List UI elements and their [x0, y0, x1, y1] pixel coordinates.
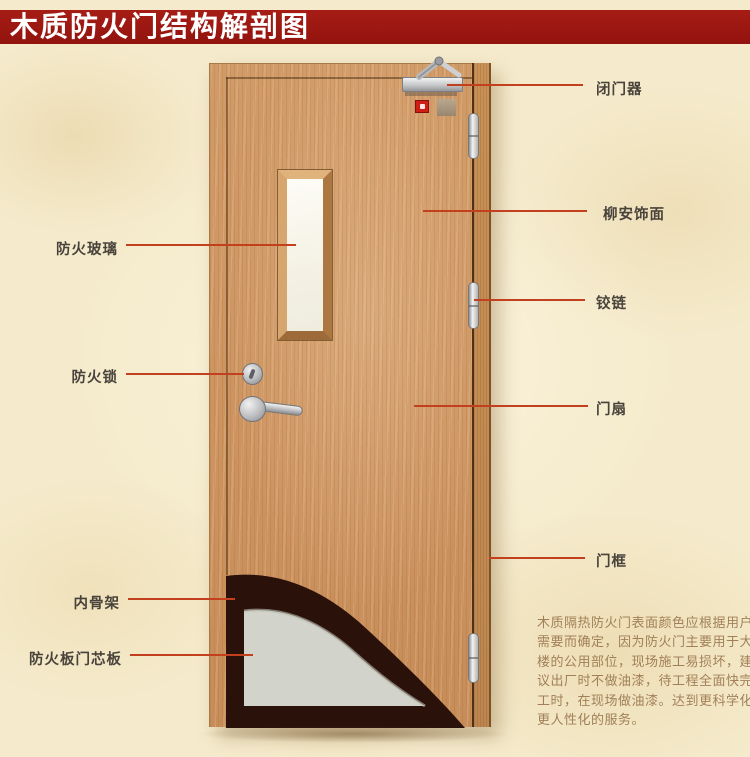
bottom-cutaway [209, 567, 471, 728]
door-closer-arm [409, 55, 469, 81]
leader-line-hinge [474, 299, 585, 301]
label-inner-frame: 内骨架 [74, 592, 121, 613]
leader-line-core-board [130, 654, 253, 656]
door-frame [474, 63, 491, 727]
fire-alarm-indicator [415, 100, 429, 113]
description-line: 木质隔热防火门表面颜色应根据用户 [537, 613, 742, 632]
label-door-leaf: 门扇 [596, 398, 627, 419]
fire-lock-cylinder [242, 363, 263, 385]
door-handle-rose [239, 396, 266, 422]
door-groove-vertical [226, 77, 228, 575]
description-paragraph: 木质隔热防火门表面颜色应根据用户 需要而确定，因为防火门主要用于大 楼的公用部位… [537, 613, 742, 729]
leader-line-door-frame [489, 557, 585, 559]
leader-line-fire-lock [126, 373, 244, 375]
label-core-board: 防火板门芯板 [29, 648, 122, 669]
description-line: 议出厂时不做油漆，待工程全面快完 [537, 671, 742, 690]
leader-line-inner-frame [128, 598, 235, 600]
label-veneer: 柳安饰面 [603, 203, 665, 224]
lock-keyhole [248, 369, 255, 380]
leader-line-fire-glass [126, 244, 296, 246]
fire-glass-window [278, 170, 332, 340]
leader-line-door-closer [447, 84, 583, 86]
hinge-bottom [468, 633, 479, 683]
description-line: 工时，在现场做油漆。达到更科学化 [537, 691, 742, 710]
leader-line-door-leaf [414, 405, 588, 407]
hinge-middle [468, 282, 479, 329]
label-hinge: 铰链 [596, 292, 627, 313]
label-fire-lock: 防火锁 [72, 366, 119, 387]
page-title: 木质防火门结构解剖图 [0, 10, 750, 44]
label-door-frame: 门框 [596, 550, 627, 571]
door-closer-shadow [405, 92, 457, 96]
door-floor-shadow [198, 725, 508, 743]
description-line: 更人性化的服务。 [537, 710, 742, 729]
description-line: 楼的公用部位，现场施工易损坏，建 [537, 652, 742, 671]
glass-pane [287, 179, 323, 331]
sign-plaque [437, 99, 456, 116]
door-illustration [209, 63, 491, 727]
alarm-indicator-dot [420, 104, 425, 109]
description-line: 需要而确定，因为防火门主要用于大 [537, 632, 742, 651]
hinge-top [468, 113, 479, 159]
label-door-closer: 闭门器 [596, 78, 643, 99]
leader-line-veneer [423, 210, 587, 212]
label-fire-glass: 防火玻璃 [56, 238, 118, 259]
fire-door-diagram: 木质防火门结构解剖图 [0, 0, 750, 757]
